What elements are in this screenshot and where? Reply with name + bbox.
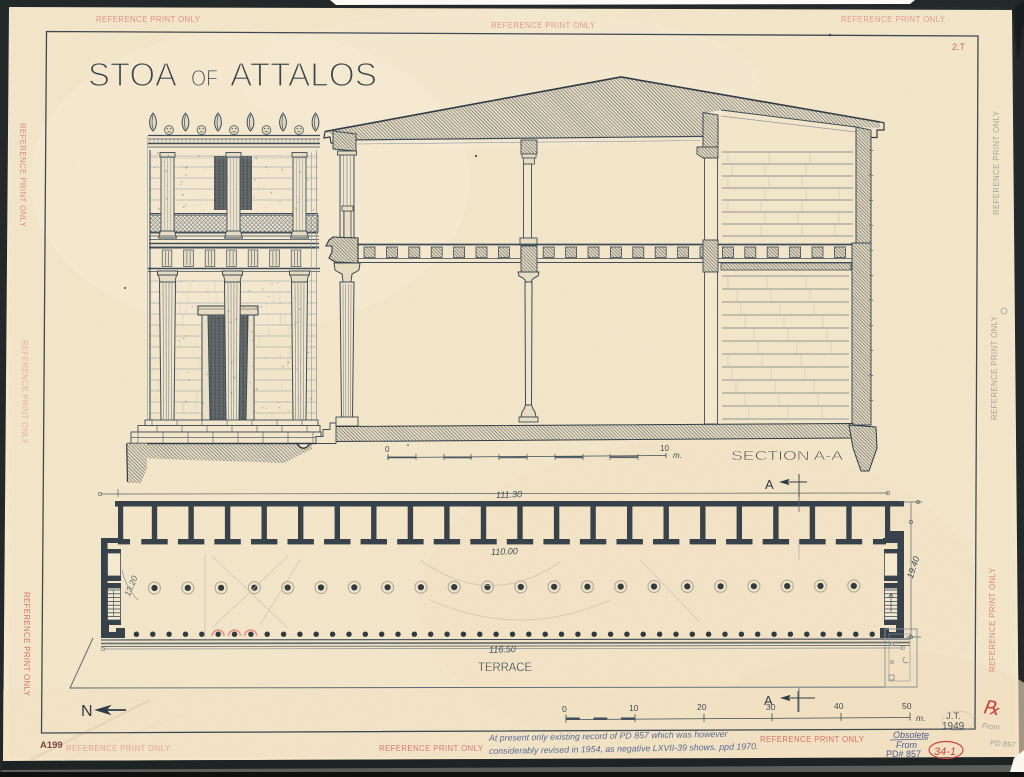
- svg-text:REFERENCE PRINT ONLY: REFERENCE PRINT ONLY: [990, 315, 999, 420]
- svg-text:0: 0: [385, 445, 390, 454]
- svg-text:REFERENCE PRINT ONLY: REFERENCE PRINT ONLY: [988, 567, 997, 672]
- svg-text:N: N: [81, 703, 93, 720]
- svg-text:TERRACE: TERRACE: [478, 662, 532, 674]
- svg-text:From: From: [982, 721, 1000, 732]
- svg-text:SECTION A-A: SECTION A-A: [731, 448, 843, 463]
- svg-text:111.30: 111.30: [496, 489, 523, 500]
- svg-text:REFERENCE PRINT ONLY: REFERENCE PRINT ONLY: [96, 15, 201, 24]
- svg-text:REFERENCE PRINT ONLY: REFERENCE PRINT ONLY: [491, 21, 596, 30]
- svg-text:110.00: 110.00: [491, 546, 518, 557]
- svg-text:PD# 857: PD# 857: [886, 749, 921, 759]
- svg-text:REFERENCE PRINT ONLY: REFERENCE PRINT ONLY: [66, 744, 171, 753]
- svg-text:50: 50: [902, 701, 912, 711]
- svg-text:REFERENCE PRINT ONLY: REFERENCE PRINT ONLY: [20, 340, 29, 445]
- svg-text:Obsolete: Obsolete: [893, 730, 929, 740]
- svg-text:10: 10: [660, 444, 669, 453]
- svg-text:REFERENCE PRINT ONLY: REFERENCE PRINT ONLY: [760, 735, 865, 744]
- svg-text:0: 0: [562, 704, 567, 714]
- svg-text:m.: m.: [916, 713, 925, 723]
- svg-text:REFERENCE PRINT ONLY: REFERENCE PRINT ONLY: [22, 592, 31, 697]
- svg-text:REFERENCE PRINT ONLY: REFERENCE PRINT ONLY: [841, 15, 946, 24]
- svg-text:ATTALOS: ATTALOS: [230, 56, 377, 93]
- svg-text:A: A: [765, 477, 774, 492]
- svg-text:30: 30: [766, 702, 776, 712]
- svg-text:34-1: 34-1: [934, 746, 956, 758]
- svg-text:116.50: 116.50: [489, 644, 516, 655]
- svg-text:STOA: STOA: [88, 56, 177, 93]
- svg-text:20: 20: [697, 702, 707, 712]
- svg-text:2.T: 2.T: [952, 42, 966, 52]
- svg-text:m.: m.: [673, 451, 682, 460]
- svg-text:REFERENCE PRINT ONLY: REFERENCE PRINT ONLY: [18, 123, 27, 228]
- svg-text:10: 10: [629, 703, 639, 713]
- svg-text:A199: A199: [40, 740, 63, 751]
- svg-text:REFERENCE PRINT ONLY: REFERENCE PRINT ONLY: [379, 744, 484, 753]
- svg-text:REFERENCE PRINT ONLY: REFERENCE PRINT ONLY: [992, 110, 1001, 215]
- svg-text:40: 40: [834, 701, 844, 711]
- svg-text:OF: OF: [191, 65, 218, 91]
